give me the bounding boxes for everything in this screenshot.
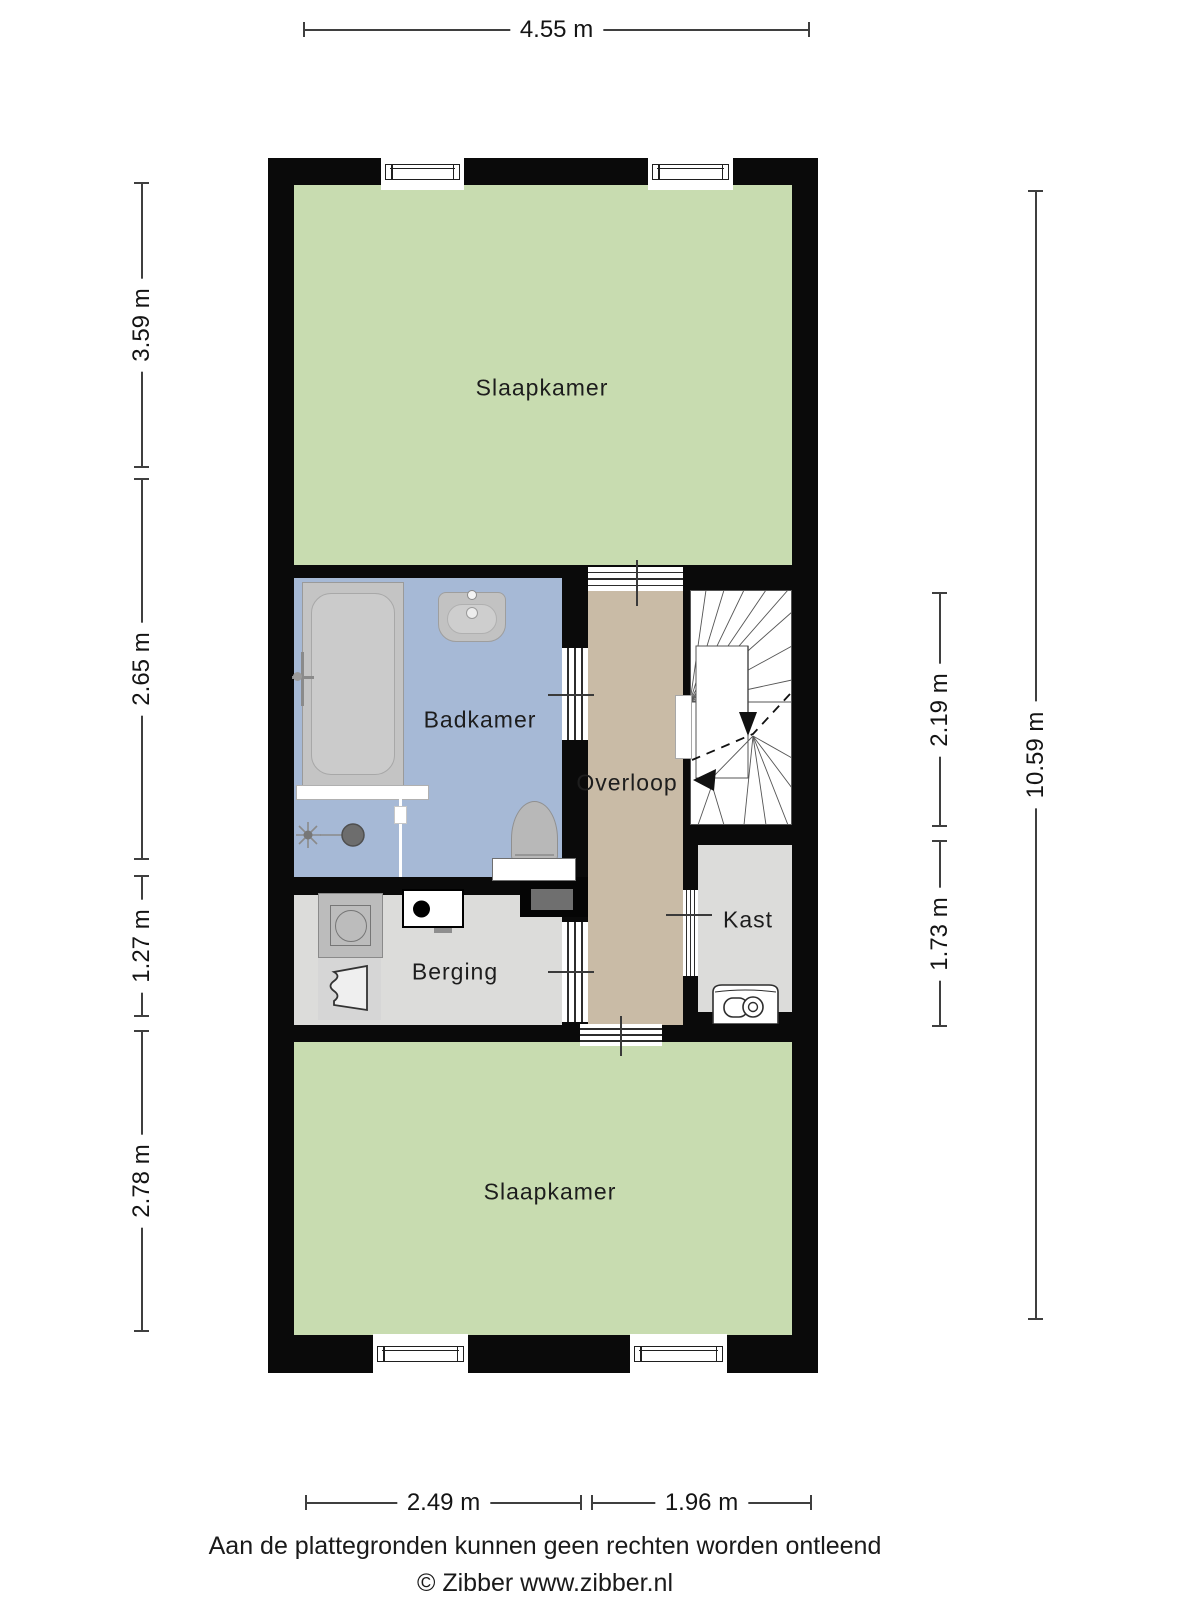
footer: Aan de plattegronden kunnen geen rechten…	[45, 1528, 1045, 1600]
dim-left-lower-label: 1.27 m	[128, 899, 156, 992]
door-tick-storage	[548, 971, 594, 973]
dim-bottom-right: 1.96 m	[591, 1489, 812, 1517]
dim-right-stairs-label: 2.19 m	[926, 663, 954, 756]
stairs-opening-marker	[675, 695, 692, 759]
bathtub-basin	[311, 593, 395, 775]
floor-plan: Slaapkamer Badkamer Overloop Kast Bergin…	[268, 158, 818, 1373]
door-tick-bathroom	[548, 694, 594, 696]
window-bottom-left	[373, 1334, 468, 1374]
label-closet: Kast	[723, 907, 773, 934]
window-bottom-right	[630, 1334, 727, 1374]
dim-bottom-left: 2.49 m	[305, 1489, 582, 1517]
dim-left-top: 3.59 m	[128, 182, 156, 468]
shower-door-handle	[394, 806, 407, 824]
footer-copyright: © Zibber www.zibber.nl	[45, 1565, 1045, 1600]
footer-disclaimer: Aan de plattegronden kunnen geen rechten…	[45, 1528, 1045, 1565]
washbasin-tap	[467, 590, 477, 600]
dim-right-closet: 1.73 m	[926, 840, 954, 1027]
window-glyph	[377, 1346, 464, 1362]
duct-box	[531, 889, 573, 910]
dim-left-middle: 2.65 m	[128, 478, 156, 860]
window-top-right	[648, 154, 733, 190]
bathtub	[302, 582, 404, 786]
toilet-cistern	[492, 858, 576, 881]
dim-left-bottom-label: 2.78 m	[128, 1134, 156, 1227]
window-top-left	[381, 154, 464, 190]
label-storage: Berging	[412, 959, 498, 986]
door-tick-bottom	[620, 1016, 622, 1056]
dim-left-top-label: 3.59 m	[128, 278, 156, 371]
dim-total-height-label: 10.59 m	[1022, 702, 1050, 809]
dim-bottom-left-label: 2.49 m	[397, 1489, 490, 1517]
floorplan-page: 4.55 m 3.59 m 2.65 m 1.27 m 2.78 m 2.19 …	[0, 0, 1200, 1600]
window-glyph	[634, 1346, 723, 1362]
dim-left-bottom: 2.78 m	[128, 1030, 156, 1332]
ventilation-unit	[402, 889, 464, 928]
label-bedroom-bottom: Slaapkamer	[484, 1179, 617, 1206]
bath-shelf	[296, 785, 429, 800]
dim-total-width-label: 4.55 m	[510, 16, 603, 44]
washbasin	[438, 592, 506, 642]
label-bedroom-top: Slaapkamer	[476, 375, 609, 402]
label-landing: Overloop	[576, 770, 677, 797]
dim-right-stairs: 2.19 m	[926, 592, 954, 827]
door-tick-closet	[666, 914, 712, 916]
window-glyph	[652, 164, 729, 180]
label-bathroom: Badkamer	[424, 707, 537, 734]
dim-right-closet-label: 1.73 m	[926, 887, 954, 980]
shower-icon	[296, 818, 366, 854]
room-landing	[588, 578, 683, 1025]
washbasin-drain	[466, 607, 478, 619]
dim-total-width: 4.55 m	[303, 16, 810, 44]
washing-machine	[318, 893, 383, 958]
staircase	[690, 590, 792, 825]
dim-total-height: 10.59 m	[1022, 190, 1050, 1320]
door-tick-top	[636, 560, 638, 606]
dim-bottom-right-label: 1.96 m	[655, 1489, 748, 1517]
laundry-basket	[318, 958, 381, 1020]
dim-left-lower: 1.27 m	[128, 875, 156, 1017]
bath-faucet-icon	[292, 652, 316, 706]
door-landing-closet	[683, 890, 698, 976]
window-glyph	[385, 164, 460, 180]
dim-left-middle-label: 2.65 m	[128, 622, 156, 715]
boiler	[712, 982, 779, 1024]
